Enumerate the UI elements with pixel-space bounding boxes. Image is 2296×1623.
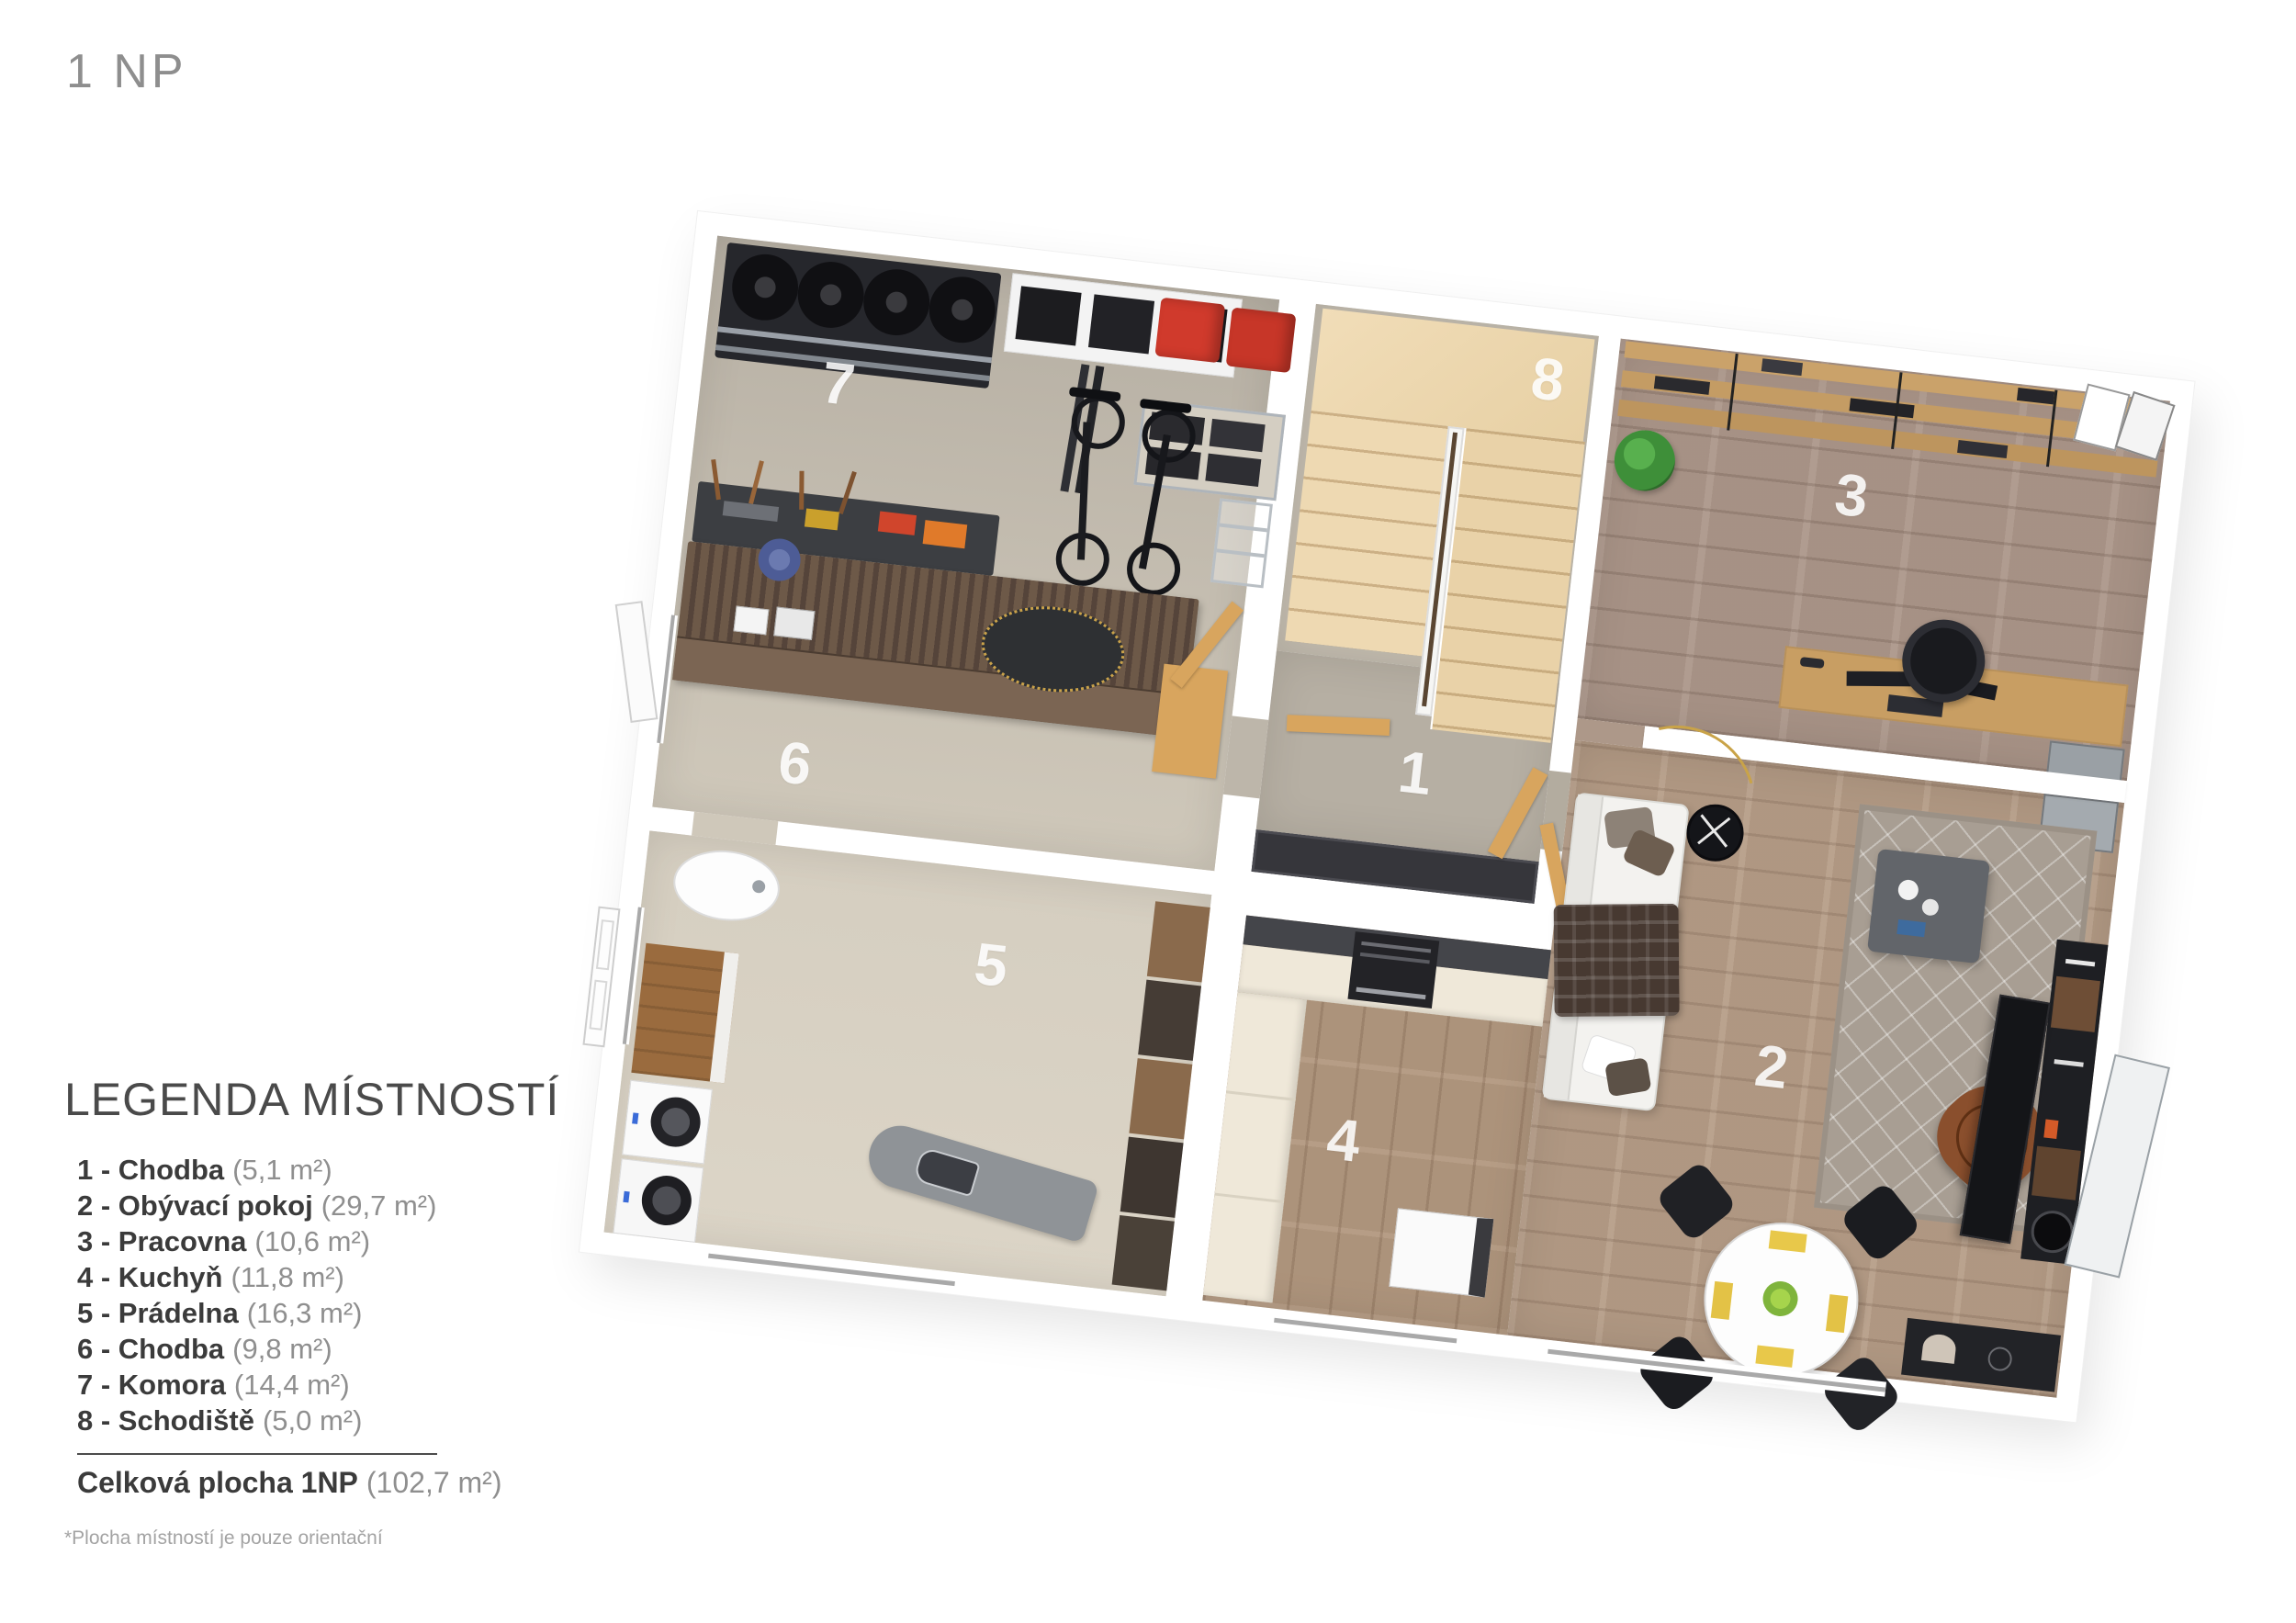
hall-cabinet xyxy=(1152,664,1228,779)
legend-item-label: 6 - Chodba xyxy=(77,1333,224,1365)
legend-item-label: 3 - Pracovna xyxy=(77,1225,246,1257)
legend-item-label: 7 - Komora xyxy=(77,1369,226,1401)
kitchen-island-unit xyxy=(1389,1208,1493,1297)
legend-item-1: 1 - Chodba(5,1 m²) xyxy=(64,1152,652,1188)
fruit-bowl xyxy=(1761,1279,1800,1318)
legend-total-area: (102,7 m²) xyxy=(366,1466,502,1499)
placemat xyxy=(1755,1346,1794,1368)
pillow xyxy=(1604,1057,1651,1097)
wood-box xyxy=(2032,1146,2081,1200)
legend-item-area: (10,6 m²) xyxy=(254,1225,370,1257)
plaid-throw xyxy=(1554,904,1680,1017)
legend-item-8: 8 - Schodiště(5,0 m²) xyxy=(64,1403,652,1438)
legend-item-area: (11,8 m²) xyxy=(231,1261,343,1293)
coffee-table xyxy=(1867,849,1990,964)
tire-icon xyxy=(926,273,999,346)
legend-item-area: (5,0 m²) xyxy=(263,1404,363,1437)
bicycles xyxy=(1044,392,1203,600)
placemat xyxy=(1769,1230,1807,1252)
iron xyxy=(913,1146,981,1197)
exterior-door-leaf xyxy=(615,601,658,723)
legend-item-area: (9,8 m²) xyxy=(232,1333,332,1365)
dining-set xyxy=(1632,1154,1937,1459)
books xyxy=(773,606,815,640)
legend-item-2: 2 - Obývací pokoj(29,7 m²) xyxy=(64,1188,652,1223)
legend-item-3: 3 - Pracovna(10,6 m²) xyxy=(64,1223,652,1259)
legend-divider xyxy=(77,1453,437,1455)
room-label-7: 7 xyxy=(793,345,884,423)
legend-item-5: 5 - Prádelna(16,3 m²) xyxy=(64,1295,652,1331)
legend-total-label: Celková plocha 1NP xyxy=(77,1466,358,1499)
room-label-3: 3 xyxy=(1806,456,1896,534)
legend-item-area: (16,3 m²) xyxy=(247,1297,363,1329)
page-title: 1 NP xyxy=(66,44,187,99)
legend-item-area: (29,7 m²) xyxy=(321,1189,437,1222)
stove xyxy=(1347,931,1439,1009)
books xyxy=(733,605,769,635)
legend-title: LEGENDA MÍSTNOSTÍ xyxy=(64,1073,652,1126)
exterior-window-frame xyxy=(582,907,620,1048)
legend-item-7: 7 - Komora(14,4 m²) xyxy=(64,1367,652,1403)
legend-item-area: (5,1 m²) xyxy=(232,1154,332,1186)
legend-item-label: 8 - Schodiště xyxy=(77,1404,254,1437)
step-ladder xyxy=(1210,498,1273,588)
placemat xyxy=(1826,1294,1848,1333)
room-label-6: 6 xyxy=(750,725,840,802)
room-label-4: 4 xyxy=(1299,1101,1389,1178)
tire-icon xyxy=(794,258,868,332)
stair-flight-left xyxy=(1285,411,1448,656)
dining-chair xyxy=(1840,1181,1922,1264)
legend-item-6: 6 - Chodba(9,8 m²) xyxy=(64,1331,652,1367)
legend-item-area: (14,4 m²) xyxy=(234,1369,350,1401)
legend-item-label: 2 - Obývací pokoj xyxy=(77,1189,313,1222)
dining-chair xyxy=(1655,1160,1738,1243)
legend-item-label: 5 - Prádelna xyxy=(77,1297,239,1329)
room-label-1: 1 xyxy=(1370,734,1460,811)
desk-lamp xyxy=(1800,657,1825,669)
tire-icon xyxy=(728,251,802,324)
storage-box xyxy=(1088,294,1154,354)
legend-item-label: 1 - Chodba xyxy=(77,1154,224,1186)
legend-item-label: 4 - Kuchyň xyxy=(77,1261,222,1293)
legend: LEGENDA MÍSTNOSTÍ 1 - Chodba(5,1 m²) 2 -… xyxy=(64,1073,652,1550)
room-label-2: 2 xyxy=(1727,1028,1817,1105)
legend-footnote: *Plocha místností je pouze orientační xyxy=(64,1527,652,1550)
legend-item-4: 4 - Kuchyň(11,8 m²) xyxy=(64,1259,652,1295)
room-label-8: 8 xyxy=(1503,341,1593,418)
placemat xyxy=(1711,1281,1733,1320)
room-label-5: 5 xyxy=(946,927,1036,1004)
wood-cabinet xyxy=(631,943,738,1084)
dining-table xyxy=(1695,1214,1866,1385)
storage-box xyxy=(1015,286,1081,345)
floor-plan: 7 6 5 8 1 xyxy=(580,211,2195,1422)
wood-box xyxy=(2051,976,2100,1032)
tire-icon xyxy=(860,265,933,339)
legend-total: Celková plocha 1NP(102,7 m²) xyxy=(64,1466,652,1500)
